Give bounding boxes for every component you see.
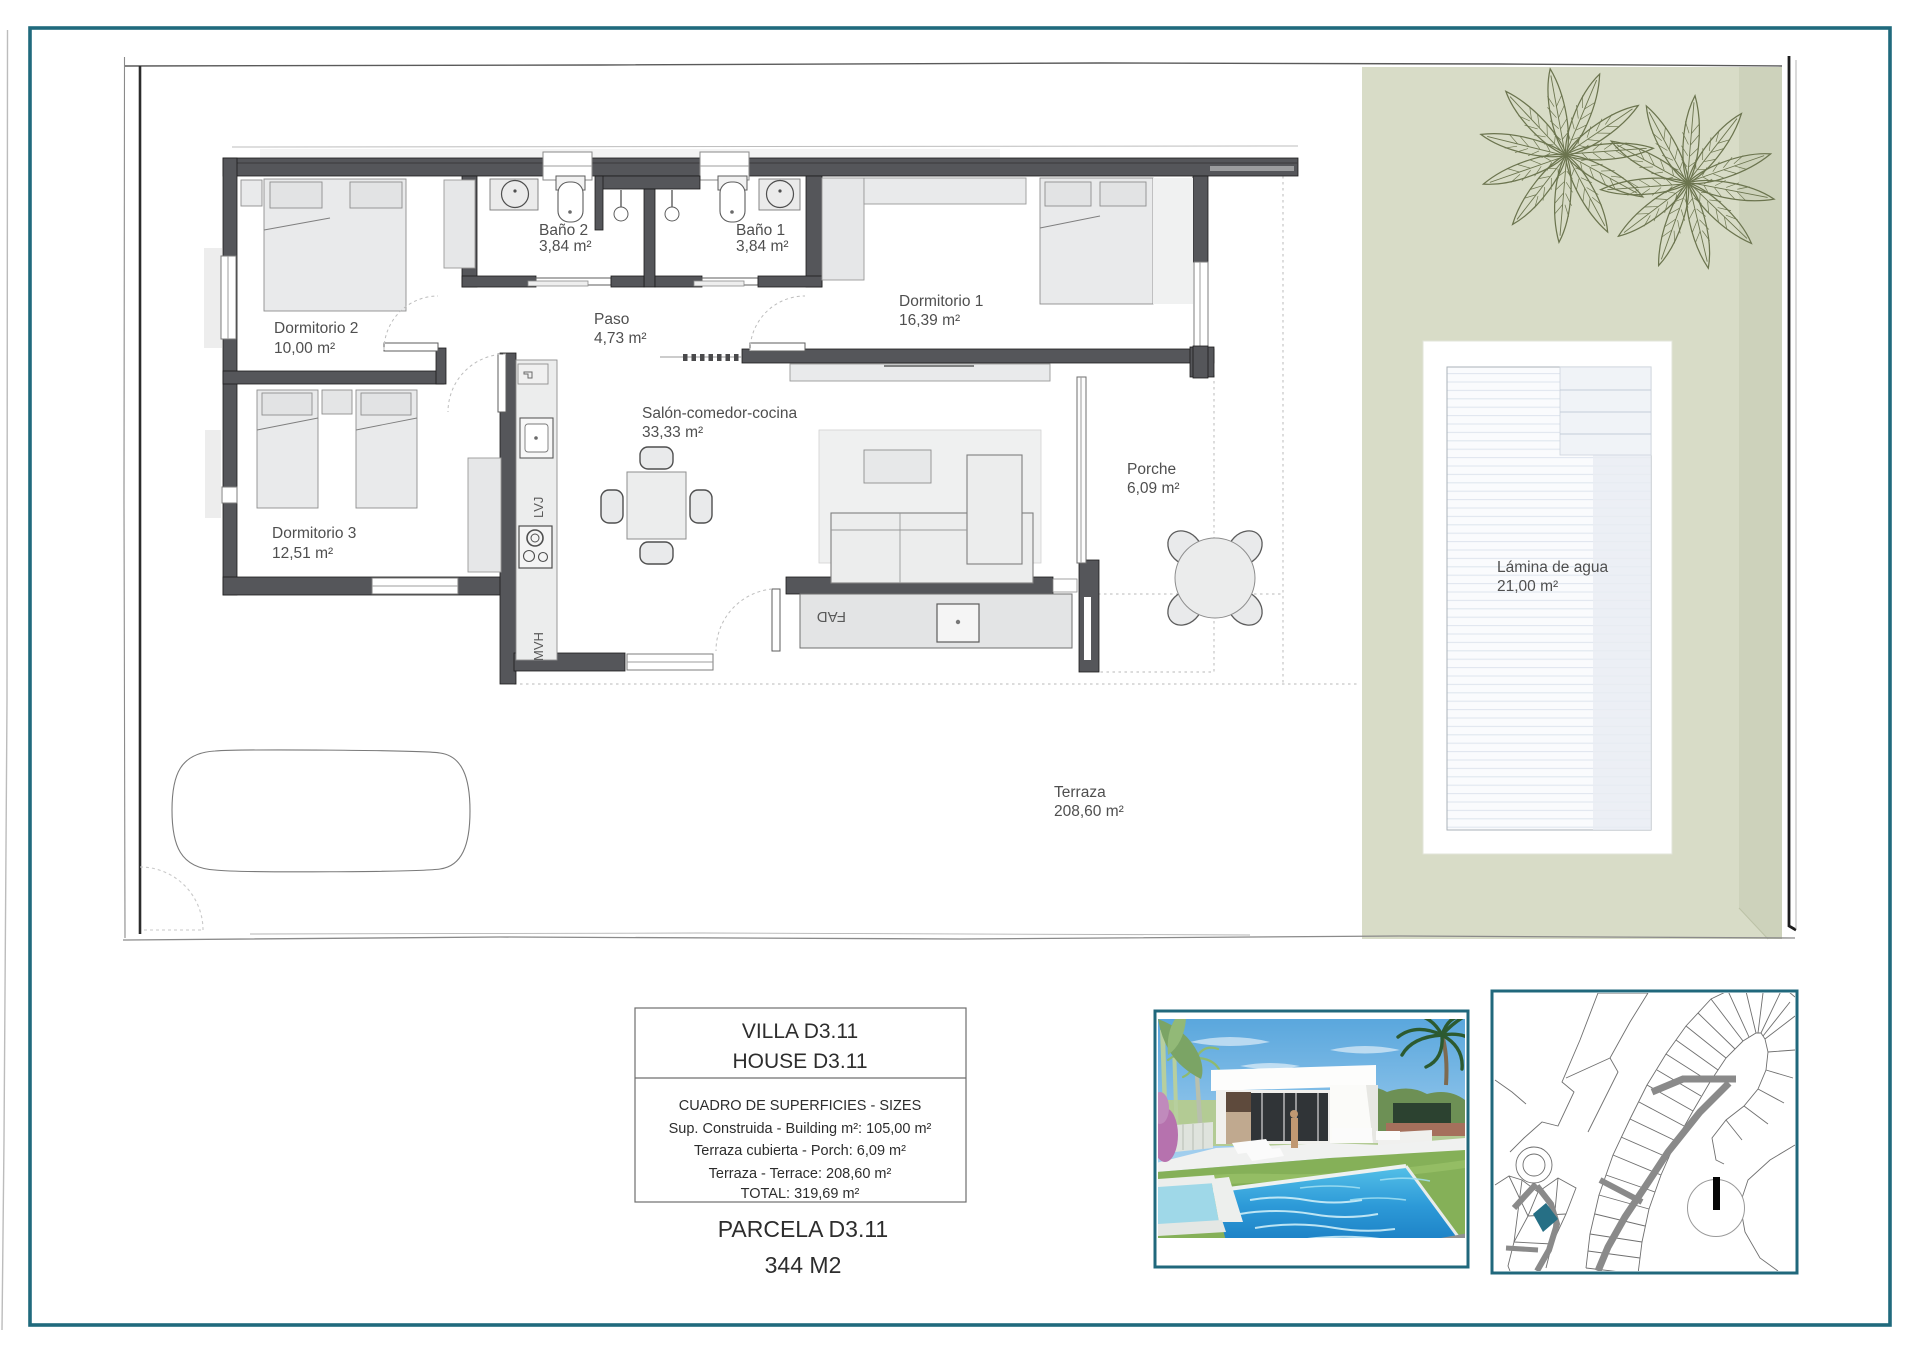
svg-text:Terraza cubierta - Porch: 6,0: Terraza cubierta - Porch: 6,09 m² xyxy=(694,1143,906,1159)
svg-text:PARCELA D3.11: PARCELA D3.11 xyxy=(718,1216,888,1242)
svg-text:Terraza - Terrace: 208,60 m²: Terraza - Terrace: 208,60 m² xyxy=(709,1166,892,1182)
svg-text:Baño 1: Baño 1 xyxy=(736,222,785,239)
svg-text:Dormitorio 3: Dormitorio 3 xyxy=(272,525,356,542)
svg-text:12,51 m²: 12,51 m² xyxy=(272,545,333,562)
svg-text:Sup. Construida - Building m²: Sup. Construida - Building m²: 105,00 m² xyxy=(669,1121,932,1137)
svg-text:HOUSE D3.11: HOUSE D3.11 xyxy=(733,1050,868,1073)
svg-text:LVJ: LVJ xyxy=(531,497,546,518)
svg-text:FAD: FAD xyxy=(817,608,846,625)
svg-text:TOTAL: 319,69 m²: TOTAL: 319,69 m² xyxy=(741,1186,860,1202)
svg-text:3,84 m²: 3,84 m² xyxy=(736,238,789,255)
svg-text:4,73 m²: 4,73 m² xyxy=(594,330,647,347)
svg-text:VILLA D3.11: VILLA D3.11 xyxy=(742,1020,858,1043)
svg-text:344 M2: 344 M2 xyxy=(765,1252,842,1278)
svg-text:Baño 2: Baño 2 xyxy=(539,222,588,239)
svg-text:Terraza: Terraza xyxy=(1054,784,1106,801)
svg-text:Lámina de agua: Lámina de agua xyxy=(1497,559,1609,576)
svg-text:Salón-comedor-cocina: Salón-comedor-cocina xyxy=(642,405,797,422)
svg-text:MVH: MVH xyxy=(531,632,546,661)
svg-text:Paso: Paso xyxy=(594,311,629,328)
svg-text:208,60 m²: 208,60 m² xyxy=(1054,803,1124,820)
svg-text:CUADRO DE SUPERFICIES - SIZES: CUADRO DE SUPERFICIES - SIZES xyxy=(679,1098,922,1114)
svg-text:Dormitorio 2: Dormitorio 2 xyxy=(274,320,358,337)
svg-text:6,09 m²: 6,09 m² xyxy=(1127,480,1180,497)
svg-text:16,39 m²: 16,39 m² xyxy=(899,312,960,329)
svg-text:Porche: Porche xyxy=(1127,461,1176,478)
svg-text:21,00 m²: 21,00 m² xyxy=(1497,578,1558,595)
svg-text:Dormitorio 1: Dormitorio 1 xyxy=(899,293,983,310)
svg-text:10,00 m²: 10,00 m² xyxy=(274,340,335,357)
svg-text:3,84 m²: 3,84 m² xyxy=(539,238,592,255)
svg-text:33,33 m²: 33,33 m² xyxy=(642,424,703,441)
